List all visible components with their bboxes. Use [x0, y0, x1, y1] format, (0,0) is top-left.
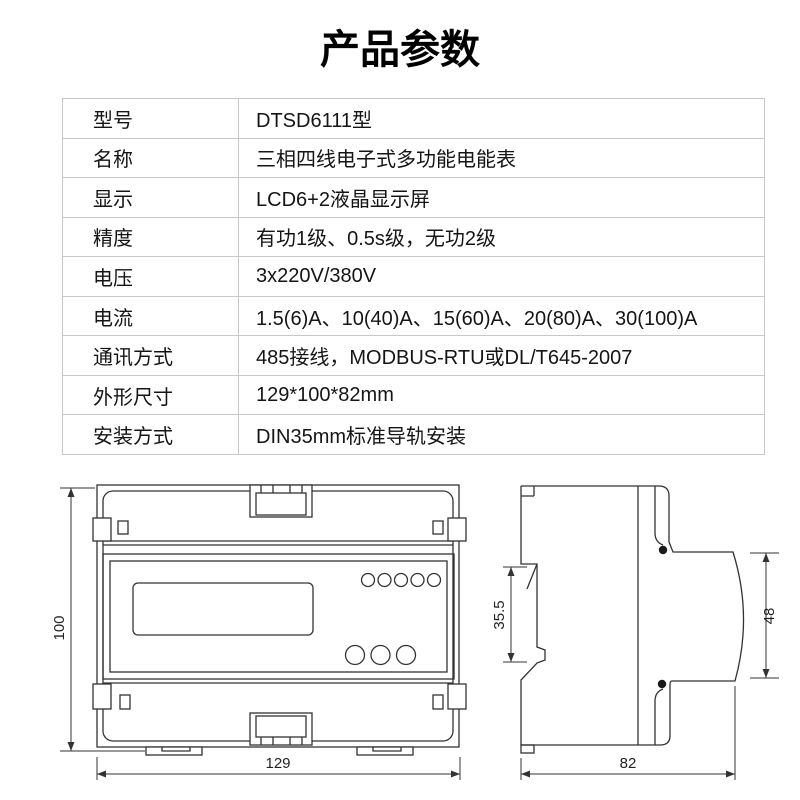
table-row: 电流 1.5(6)A、10(40)A、15(60)A、20(80)A、30(10… — [63, 296, 765, 336]
table-row: 名称 三相四线电子式多功能电能表 — [63, 138, 765, 178]
spec-value: DTSD6111型 — [239, 99, 765, 139]
table-row: 安装方式 DIN35mm标准导轨安装 — [63, 415, 765, 455]
dim-label: 35.5 — [491, 600, 508, 629]
mounting-feet — [146, 747, 413, 755]
indicator-leds — [362, 574, 441, 587]
table-row: 外形尺寸 129*100*82mm — [63, 375, 765, 415]
spec-label: 精度 — [63, 217, 239, 257]
spec-label: 安装方式 — [63, 415, 239, 455]
table-row: 精度 有功1级、0.5s级，无功2级 — [63, 217, 765, 257]
spec-label: 型号 — [63, 99, 239, 139]
spec-table: 型号 DTSD6111型 名称 三相四线电子式多功能电能表 显示 LCD6+2液… — [62, 98, 765, 455]
dim-face-height: 48 — [750, 553, 779, 678]
dim-label: 48 — [761, 608, 778, 625]
notch — [93, 518, 111, 541]
panel-buttons — [346, 646, 416, 665]
dim-label: 100 — [51, 615, 68, 640]
table-row: 电压 3x220V/380V — [63, 257, 765, 297]
table-row: 显示 LCD6+2液晶显示屏 — [63, 178, 765, 218]
screw-square — [433, 521, 443, 534]
table-row: 通讯方式 485接线，MODBUS-RTU或DL/T645-2007 — [63, 336, 765, 376]
side-view-drawing — [521, 486, 744, 753]
spec-value: 3x220V/380V — [239, 257, 765, 297]
spec-label: 名称 — [63, 138, 239, 178]
dim-front-width: 129 — [97, 755, 460, 780]
spec-label: 电压 — [63, 257, 239, 297]
dim-depth: 82 — [521, 686, 735, 780]
spec-value: 485接线，MODBUS-RTU或DL/T645-2007 — [239, 336, 765, 376]
dimension-drawings: 100 129 35.5 48 — [0, 460, 800, 800]
din-clip-top — [250, 485, 312, 517]
screw-square — [118, 521, 128, 534]
spec-value: 1.5(6)A、10(40)A、15(60)A、20(80)A、30(100)A — [239, 296, 765, 336]
notch — [93, 684, 111, 709]
screw-square — [433, 695, 443, 709]
lcd-display — [133, 583, 313, 635]
din-clip-bottom — [250, 713, 312, 745]
screw-dot — [658, 680, 666, 688]
spec-value: DIN35mm标准导轨安装 — [239, 415, 765, 455]
screw-square — [120, 695, 130, 709]
page-title: 产品参数 — [0, 26, 800, 74]
front-view-drawing — [93, 485, 466, 755]
dim-label: 82 — [620, 755, 637, 772]
screw-dot — [659, 546, 667, 554]
notch — [448, 518, 466, 541]
spec-label: 外形尺寸 — [63, 375, 239, 415]
notch — [448, 684, 466, 709]
spec-label: 显示 — [63, 178, 239, 218]
dim-label: 129 — [265, 755, 290, 772]
dim-rail-slot: 35.5 — [491, 567, 527, 662]
spec-label: 通讯方式 — [63, 336, 239, 376]
table-row: 型号 DTSD6111型 — [63, 99, 765, 139]
spec-value: 有功1级、0.5s级，无功2级 — [239, 217, 765, 257]
spec-label: 电流 — [63, 296, 239, 336]
spec-value: 129*100*82mm — [239, 375, 765, 415]
spec-value: LCD6+2液晶显示屏 — [239, 178, 765, 218]
spec-value: 三相四线电子式多功能电能表 — [239, 138, 765, 178]
